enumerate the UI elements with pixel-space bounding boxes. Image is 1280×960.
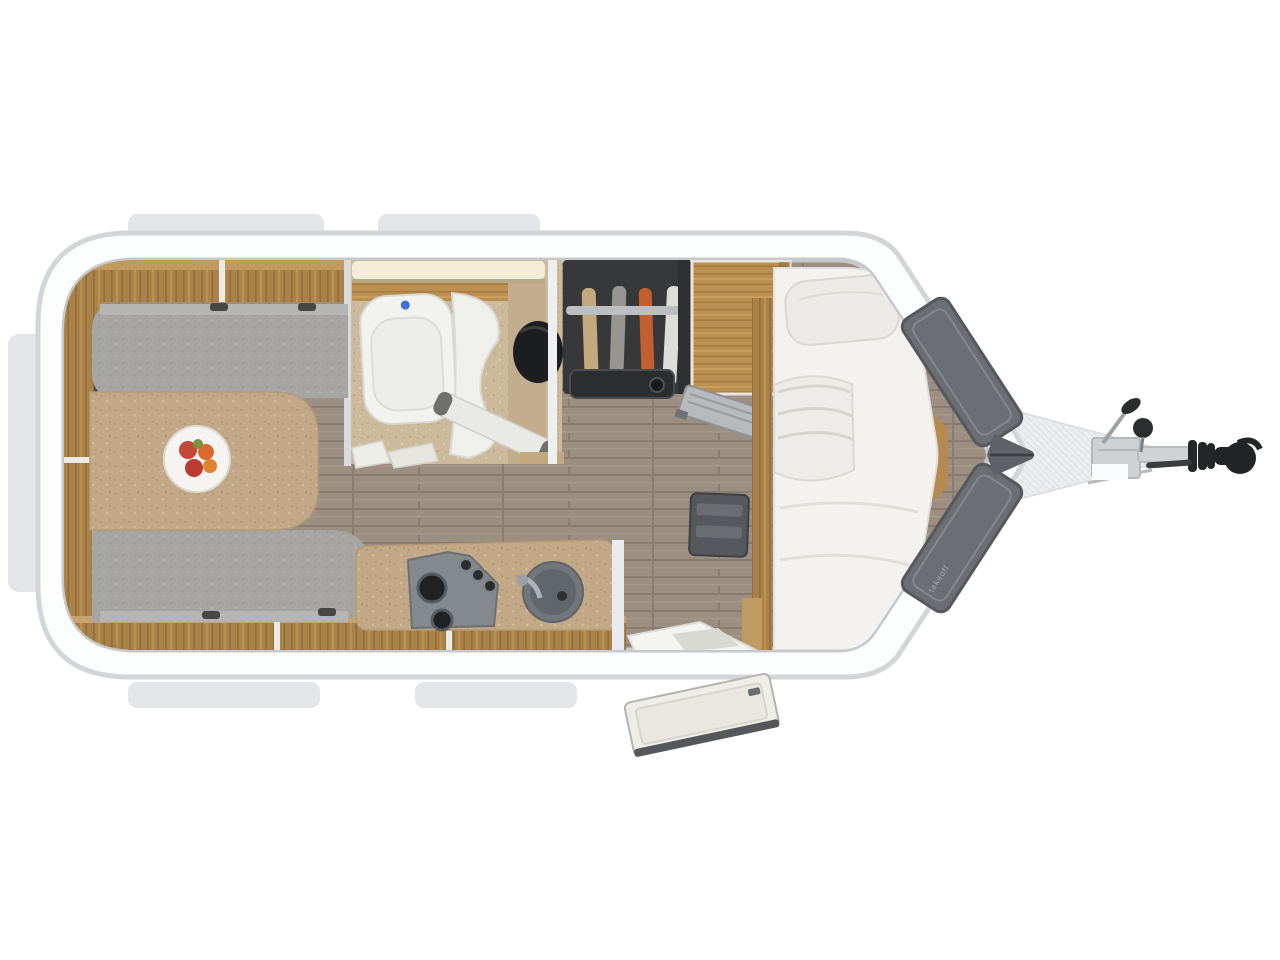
bench-clip-2 (298, 303, 316, 311)
burner-large (418, 574, 446, 602)
bench-clip-4 (318, 608, 336, 616)
hob-knob-1 (460, 559, 472, 571)
wardrobe-area (563, 260, 691, 398)
cabinet-gap (678, 260, 690, 394)
faucet-base (516, 574, 528, 586)
hob-knob-2 (472, 569, 484, 581)
jockey-wheel-handle (1133, 418, 1153, 438)
coupling-shaft (1138, 447, 1190, 462)
fruit-plate (164, 426, 230, 492)
duvet-fold (774, 376, 854, 480)
shelf-knob (650, 378, 664, 392)
hitch-head (1224, 442, 1256, 474)
sink-drain (557, 591, 567, 601)
bench-clip-1 (210, 303, 228, 311)
bathroom-area (351, 260, 564, 468)
skylight-shadow (352, 279, 545, 283)
fruit-red-2 (185, 459, 203, 477)
kitchen-end-wall (612, 540, 624, 655)
hob-knob-3 (484, 580, 496, 592)
caravan-floorplan: takeoff (0, 0, 1280, 960)
jockey-stem (1141, 437, 1143, 452)
entrance-door-open (624, 673, 780, 758)
dinette-bench-top (92, 304, 348, 398)
tall-cabinet-area (674, 261, 790, 445)
caravan-floorplan-page: takeoff (0, 0, 1280, 960)
fruit-orange-2 (203, 459, 217, 473)
bottom-window-tab-2 (415, 682, 577, 708)
bench-clip-3 (202, 611, 220, 619)
wardrobe-rail (566, 306, 688, 315)
bottom-window-tab-1 (128, 682, 320, 708)
toilet-seat (370, 316, 445, 412)
bathroom-bottom-wall (520, 452, 564, 464)
bathroom-wardrobe-divider (548, 260, 557, 464)
locker-divider (219, 258, 225, 302)
bathroom-skylight-band (352, 261, 545, 279)
bracket-cutout (1092, 464, 1128, 480)
burner-small (432, 610, 452, 630)
drawbar-hitch (1088, 395, 1260, 483)
entry-steps (689, 493, 749, 557)
fruit-leaf (193, 439, 203, 449)
bench-bottom-backrest (100, 611, 348, 622)
